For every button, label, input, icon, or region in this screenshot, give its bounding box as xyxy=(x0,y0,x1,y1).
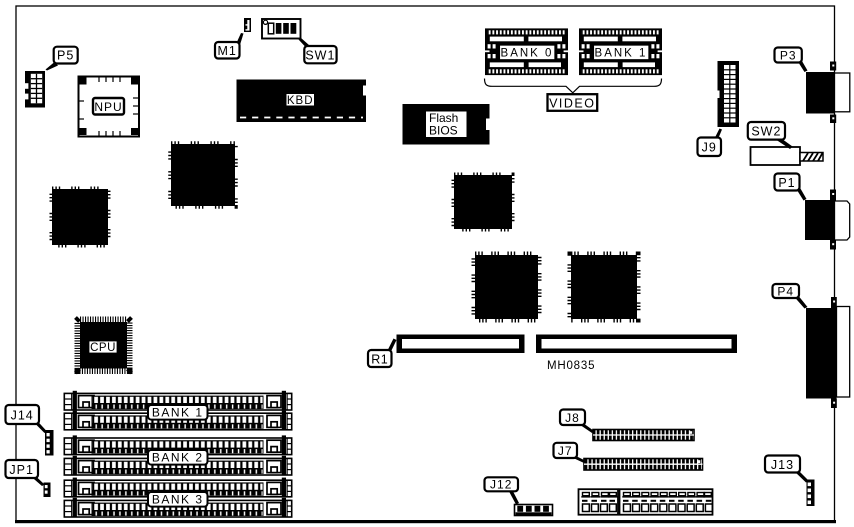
svg-text:KBD: KBD xyxy=(287,95,314,107)
svg-text:J8: J8 xyxy=(565,411,580,425)
svg-text:R1: R1 xyxy=(371,352,388,366)
svg-text:M1: M1 xyxy=(218,44,237,58)
svg-text:CPU: CPU xyxy=(90,342,116,354)
svg-text:BANK 2: BANK 2 xyxy=(152,451,204,465)
svg-text:BANK 1: BANK 1 xyxy=(595,48,648,60)
svg-text:SW2: SW2 xyxy=(751,125,781,139)
svg-text:J12: J12 xyxy=(490,478,512,492)
svg-text:MH0835: MH0835 xyxy=(547,360,595,372)
svg-text:VIDEO: VIDEO xyxy=(549,96,595,110)
svg-text:P3: P3 xyxy=(780,49,797,63)
svg-text:SW1: SW1 xyxy=(305,48,335,62)
svg-text:NPU: NPU xyxy=(94,100,122,114)
svg-text:BANK 3: BANK 3 xyxy=(152,493,204,507)
svg-text:P1: P1 xyxy=(778,176,795,190)
svg-text:BANK 1: BANK 1 xyxy=(152,406,204,420)
svg-text:J9: J9 xyxy=(702,141,717,155)
svg-text:JP1: JP1 xyxy=(9,463,34,477)
svg-text:P5: P5 xyxy=(57,49,74,63)
svg-text:J13: J13 xyxy=(771,458,794,472)
svg-text:J7: J7 xyxy=(558,444,573,458)
svg-text:J14: J14 xyxy=(11,408,34,422)
svg-text:P4: P4 xyxy=(777,284,794,298)
svg-text:BANK 0: BANK 0 xyxy=(501,48,554,60)
svg-text:BIOS: BIOS xyxy=(429,124,458,138)
